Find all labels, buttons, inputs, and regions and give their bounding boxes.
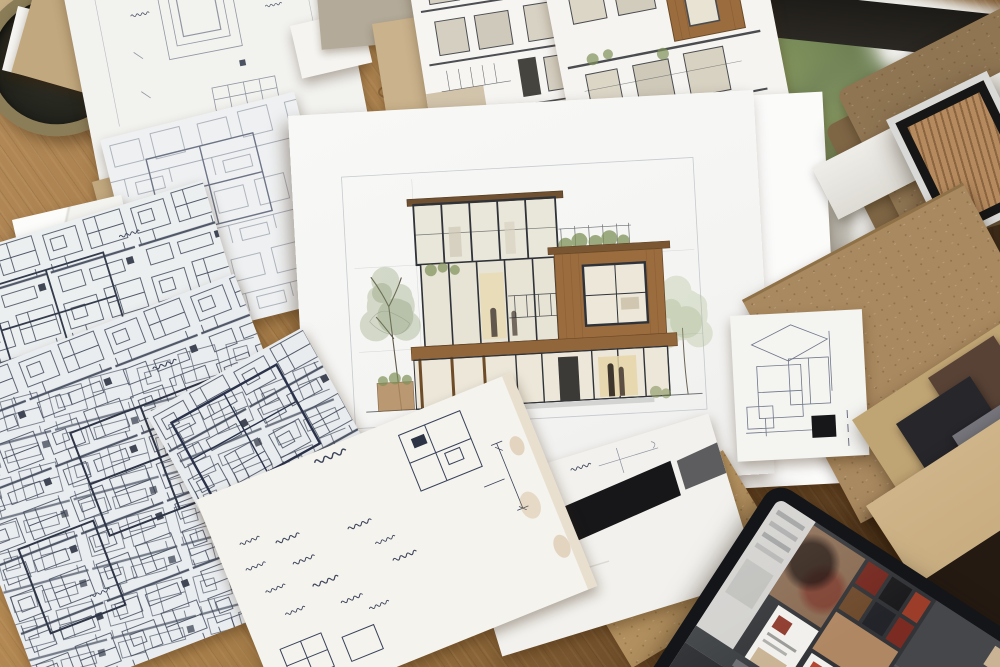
detail-card-drawing bbox=[730, 309, 869, 462]
photo-architect-desk bbox=[0, 0, 1000, 667]
black-square bbox=[811, 415, 836, 438]
detail-card bbox=[730, 309, 869, 462]
